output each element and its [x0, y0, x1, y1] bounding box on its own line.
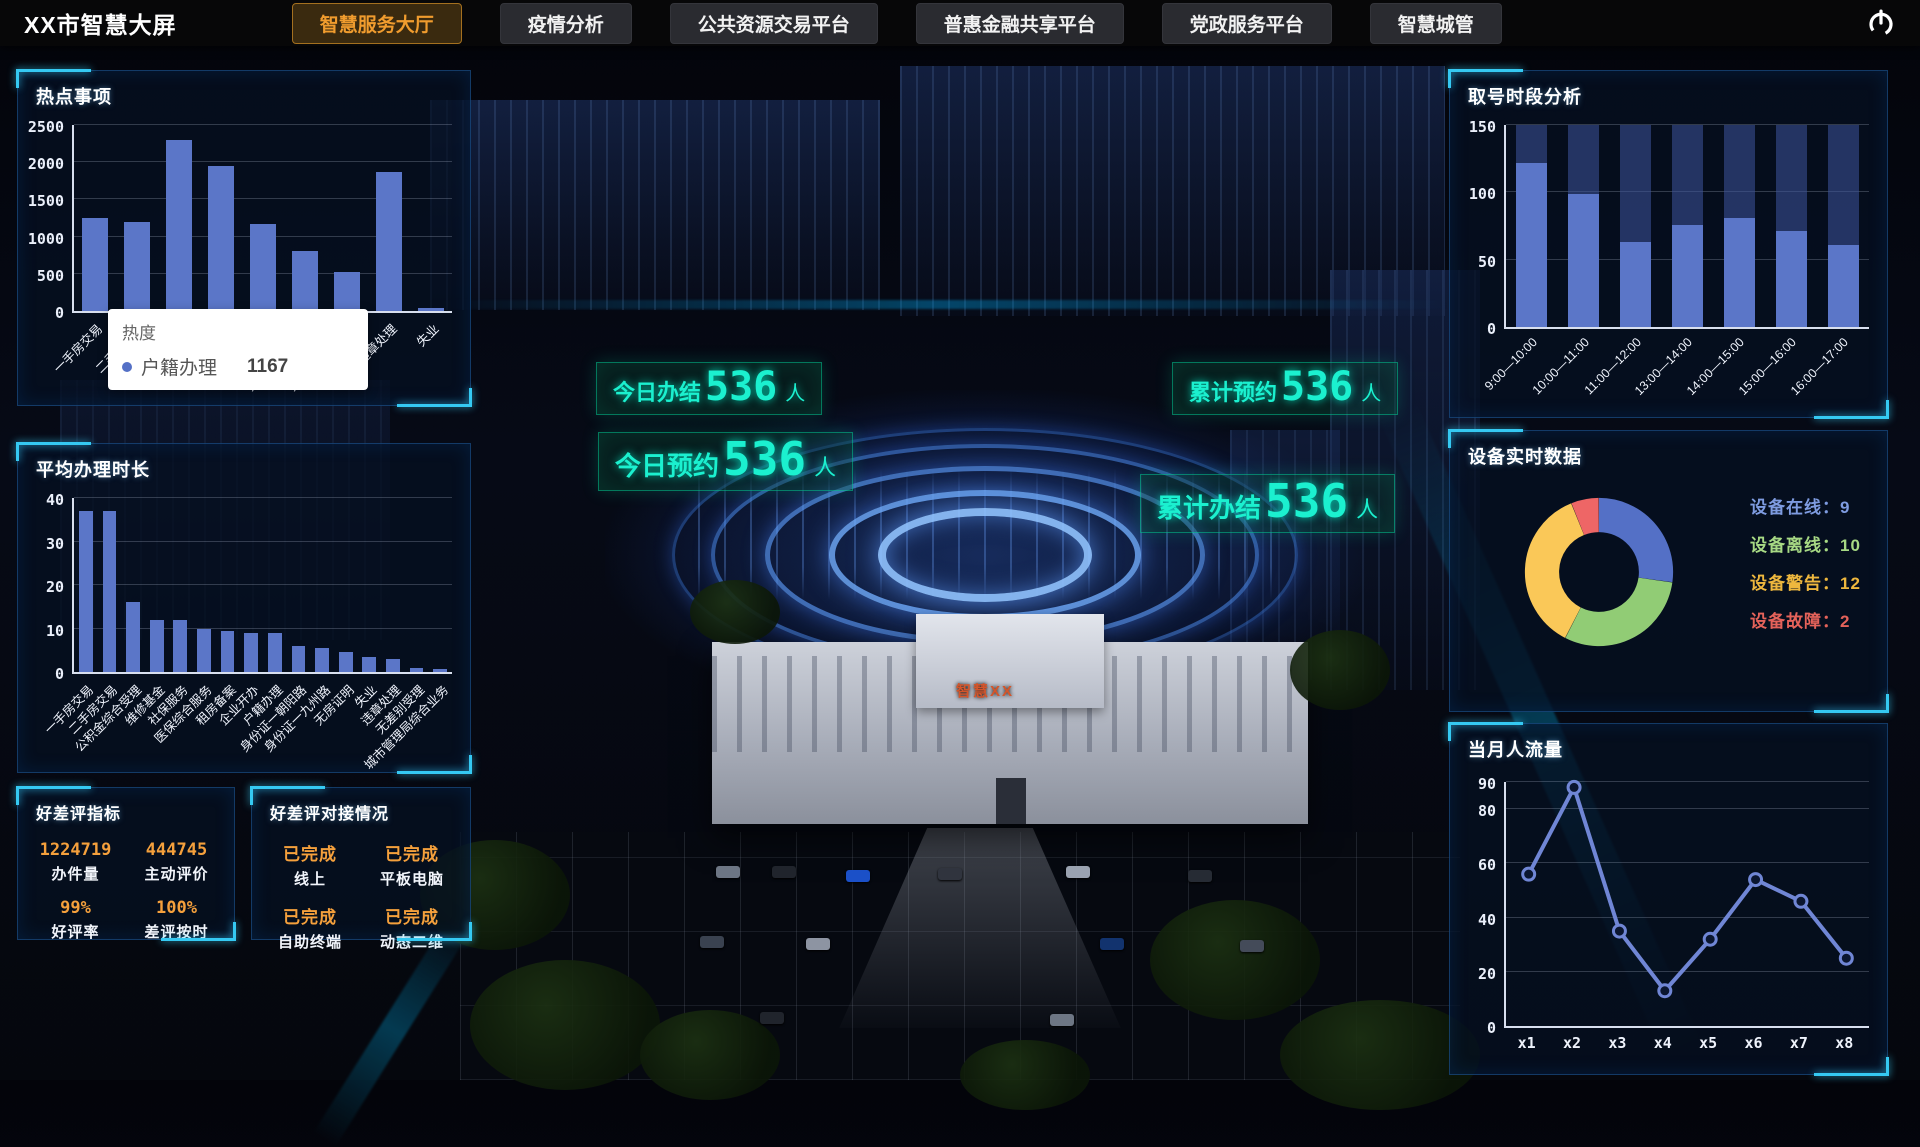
bar: [376, 172, 401, 311]
panel-title: 好差评指标: [18, 788, 234, 824]
nav-tab-service-hall[interactable]: 智慧服务大厅: [292, 3, 462, 44]
bar-remainder: [1776, 125, 1807, 231]
stat-unit: 人: [814, 450, 836, 482]
bar: [1776, 231, 1807, 327]
government-building: [712, 642, 1308, 824]
x-axis-label: x3: [1608, 1034, 1626, 1052]
bar-remainder: [1672, 125, 1703, 225]
tooltip-title: 热度: [122, 319, 354, 344]
metric-cases: 1224719 办件量: [28, 840, 123, 884]
bar: [1620, 242, 1651, 327]
monthly-flow-chart: 02040608090x1x2x3x4x5x6x7x8: [1458, 772, 1877, 1064]
x-axis-label: x5: [1699, 1034, 1717, 1052]
tree: [690, 580, 780, 644]
device-stat-label: 设备在线: [1750, 498, 1822, 517]
bar: [1516, 163, 1547, 327]
metric-value: 100%: [129, 898, 224, 918]
bar: [362, 657, 376, 672]
nav-tab-epidemic[interactable]: 疫情分析: [500, 3, 632, 44]
parked-car: [1066, 866, 1090, 878]
tooltip-series: 户籍办理: [141, 353, 217, 380]
stat-label: 累计预约: [1189, 375, 1277, 407]
panel-title: 取号时段分析: [1450, 71, 1887, 109]
panel-device-data: 设备实时数据 设备在线：9 设备离线：10 设备警告：12 设备故障：2: [1449, 430, 1888, 712]
panel-title: 热点事项: [18, 71, 470, 109]
bar: [150, 620, 164, 672]
parked-car: [1100, 938, 1124, 950]
device-stat-value: 12: [1840, 574, 1861, 593]
stat-today-completed: 今日办结536人: [596, 362, 822, 415]
panel-monthly-flow: 当月人流量 02040608090x1x2x3x4x5x6x7x8: [1449, 723, 1888, 1075]
series-marker-icon: [122, 362, 132, 372]
bar: [339, 652, 353, 672]
stat-label: 今日预约: [615, 446, 719, 483]
donut-segment-设备警告: [1542, 519, 1578, 622]
stat-value: 536: [705, 370, 777, 404]
integration-label: 平板电脑: [364, 868, 460, 889]
bar: [79, 511, 93, 672]
y-axis-tick: 150: [1458, 118, 1496, 136]
top-nav: XX市智慧大屏 智慧服务大厅 疫情分析 公共资源交易平台 普惠金融共享平台 党政…: [0, 0, 1920, 46]
integration-online: 已完成 线上: [262, 840, 358, 889]
y-axis-tick: 0: [26, 304, 64, 322]
tree: [1290, 630, 1390, 710]
data-point: [1795, 895, 1807, 907]
data-point: [1613, 925, 1625, 937]
parked-car: [1240, 940, 1264, 952]
x-axis-label: x2: [1563, 1034, 1581, 1052]
parked-car: [938, 868, 962, 880]
bar: [418, 308, 443, 311]
bar: [334, 272, 359, 311]
power-icon: [1866, 8, 1896, 38]
metric-value: 99%: [28, 898, 123, 918]
parked-car: [700, 936, 724, 948]
power-button[interactable]: [1866, 8, 1896, 38]
x-axis-label: x7: [1790, 1034, 1808, 1052]
panel-title: 平均办理时长: [18, 444, 470, 482]
chart-tooltip: 热度 户籍办理 1167: [108, 309, 368, 390]
device-stat-value: 10: [1840, 536, 1861, 555]
parked-car: [1188, 870, 1212, 882]
nav-tab-party-gov[interactable]: 党政服务平台: [1162, 3, 1332, 44]
bar: [1828, 245, 1859, 327]
parked-car: [772, 866, 796, 878]
y-axis-tick: 0: [1458, 320, 1496, 338]
data-point: [1750, 874, 1762, 886]
bar: [1724, 218, 1755, 327]
bar: [386, 659, 400, 672]
data-point: [1840, 952, 1852, 964]
app-title: XX市智慧大屏: [24, 6, 177, 40]
panel-avg-handling-time: 平均办理时长 010203040一手房交易二手房交易公积金综合受理维修基金社保服…: [17, 443, 471, 773]
y-axis-tick: 20: [1458, 965, 1496, 983]
stat-total-completed: 累计办结536人: [1140, 474, 1395, 533]
y-axis-tick: 10: [26, 622, 64, 640]
parked-car: [806, 938, 830, 950]
panel-rating-metrics: 好差评指标 1224719 办件量 444745 主动评价 99% 好评率 10…: [17, 787, 235, 940]
integration-tablet: 已完成 平板电脑: [364, 840, 460, 889]
panel-rating-integration: 好差评对接情况 已完成 线上 已完成 平板电脑 已完成 自助终端 已完成 动态二…: [251, 787, 471, 940]
x-axis-label: x4: [1654, 1034, 1672, 1052]
bar-remainder: [1828, 125, 1859, 245]
device-donut-chart: [1504, 477, 1694, 667]
line-series: [1506, 782, 1869, 1026]
bar: [244, 633, 258, 672]
stat-unit: 人: [1356, 492, 1378, 524]
bar: [250, 224, 275, 311]
integration-kiosk: 已完成 自助终端: [262, 903, 358, 952]
data-point: [1659, 985, 1671, 997]
parked-car: [1050, 1014, 1074, 1026]
metric-label: 好评率: [28, 921, 123, 942]
parked-car: [760, 1012, 784, 1024]
device-stat-value: 9: [1840, 498, 1850, 517]
bar: [268, 633, 282, 672]
data-point: [1523, 868, 1535, 880]
bar: [315, 648, 329, 672]
parked-car: [846, 870, 870, 882]
donut-segment-设备故障: [1578, 515, 1599, 519]
device-stats: 设备在线：9 设备离线：10 设备警告：12 设备故障：2: [1750, 493, 1861, 632]
bar-remainder: [1516, 125, 1547, 163]
bar-remainder: [1568, 125, 1599, 194]
stat-label: 今日办结: [613, 375, 701, 407]
stat-value: 536: [723, 440, 806, 479]
device-stat-label: 设备离线: [1750, 536, 1822, 555]
integration-label: 自助终端: [262, 931, 358, 952]
metric-label: 主动评价: [129, 863, 224, 884]
integration-status: 已完成: [364, 840, 460, 865]
y-axis-tick: 60: [1458, 856, 1496, 874]
y-axis-tick: 20: [26, 578, 64, 596]
tree: [960, 1040, 1090, 1110]
y-axis-tick: 2500: [26, 118, 64, 136]
integration-label: 线上: [262, 868, 358, 889]
device-fault: 设备故障：2: [1750, 607, 1861, 632]
bar: [124, 222, 149, 311]
building-door: [996, 778, 1026, 824]
x-axis-label: x1: [1518, 1034, 1536, 1052]
bar: [208, 166, 233, 311]
device-stat-label: 设备故障: [1750, 612, 1822, 631]
bar: [103, 511, 117, 672]
parked-car: [716, 866, 740, 878]
stat-total-booked: 累计预约536人: [1172, 362, 1398, 415]
tree: [640, 1010, 780, 1100]
y-axis-tick: 90: [1458, 775, 1496, 793]
donut-chart: [1504, 477, 1694, 667]
device-offline: 设备离线：10: [1750, 531, 1861, 556]
avg-time-chart: 010203040一手房交易二手房交易公积金综合受理维修基金社保服务医保综合服务…: [26, 488, 460, 770]
metric-value: 1224719: [28, 840, 123, 860]
metric-label: 差评按时: [129, 921, 224, 942]
bar: [292, 251, 317, 311]
panel-title: 设备实时数据: [1450, 431, 1887, 469]
metric-positive-rate: 99% 好评率: [28, 898, 123, 942]
panel-queue-analysis: 取号时段分析 0501001509:00—10:0010:00—11:0011:…: [1449, 70, 1888, 418]
background-buildings-left: [430, 100, 880, 310]
bar: [173, 620, 187, 672]
y-axis-tick: 30: [26, 535, 64, 553]
bar: [166, 140, 191, 311]
bar: [1672, 225, 1703, 327]
y-axis-tick: 1500: [26, 192, 64, 210]
hologram-ring-5: [878, 508, 1092, 602]
data-point: [1568, 781, 1580, 793]
y-axis-tick: 2000: [26, 155, 64, 173]
x-axis-label: x6: [1745, 1034, 1763, 1052]
panel-title: 当月人流量: [1450, 724, 1887, 762]
data-point: [1704, 933, 1716, 945]
bar: [221, 631, 235, 672]
y-axis-tick: 80: [1458, 802, 1496, 820]
bar: [292, 646, 306, 672]
y-axis-tick: 500: [26, 267, 64, 285]
lit-road-horizontal: [430, 300, 1450, 309]
bar: [82, 218, 107, 311]
y-axis-tick: 40: [1458, 911, 1496, 929]
stat-unit: 人: [1361, 377, 1381, 406]
bar: [1568, 194, 1599, 327]
metric-active-reviews: 444745 主动评价: [129, 840, 224, 884]
device-online: 设备在线：9: [1750, 493, 1861, 518]
donut-segment-设备在线: [1599, 515, 1656, 580]
building-name-label: 智慧XX: [956, 680, 1014, 701]
bar-remainder: [1620, 125, 1651, 242]
tree: [1150, 900, 1320, 1020]
y-axis-tick: 100: [1458, 185, 1496, 203]
device-warning: 设备警告：12: [1750, 569, 1861, 594]
integration-label: 动态二维: [364, 931, 460, 952]
metric-label: 办件量: [28, 863, 123, 884]
donut-segment-设备离线: [1573, 580, 1655, 629]
tree: [470, 960, 660, 1090]
metric-negative-ontime: 100% 差评按时: [129, 898, 224, 942]
stat-today-booked: 今日预约536人: [598, 432, 853, 491]
bar: [410, 668, 424, 672]
y-axis-tick: 0: [1458, 1019, 1496, 1037]
tooltip-value: 1167: [247, 356, 288, 378]
stat-value: 536: [1281, 370, 1353, 404]
queue-chart: 0501001509:00—10:0010:00—11:0011:00—12:0…: [1458, 115, 1877, 413]
device-stat-value: 2: [1840, 612, 1850, 631]
integration-status: 已完成: [262, 903, 358, 928]
nav-tab-city-mgmt[interactable]: 智慧城管: [1370, 3, 1502, 44]
y-axis-tick: 50: [1458, 253, 1496, 271]
y-axis-tick: 0: [26, 665, 64, 683]
integration-qr: 已完成 动态二维: [364, 903, 460, 952]
y-axis-tick: 1000: [26, 230, 64, 248]
panel-hot-items: 热点事项 05001000150020002500一手房交易二手房交易医保综合服…: [17, 70, 471, 406]
stat-value: 536: [1265, 482, 1348, 521]
integration-status: 已完成: [364, 903, 460, 928]
device-stat-label: 设备警告: [1750, 574, 1822, 593]
integration-status: 已完成: [262, 840, 358, 865]
y-axis-tick: 40: [26, 491, 64, 509]
bar-remainder: [1724, 125, 1755, 218]
x-axis-label: 失业: [411, 319, 442, 350]
panel-title: 好差评对接情况: [252, 788, 470, 824]
bar: [126, 602, 140, 672]
nav-tab-public-resource[interactable]: 公共资源交易平台: [670, 3, 878, 44]
stat-label: 累计办结: [1157, 488, 1261, 525]
bar: [197, 629, 211, 673]
bar: [433, 669, 447, 672]
x-axis-label: x8: [1835, 1034, 1853, 1052]
nav-tab-finance[interactable]: 普惠金融共享平台: [916, 3, 1124, 44]
metric-value: 444745: [129, 840, 224, 860]
stat-unit: 人: [785, 377, 805, 406]
